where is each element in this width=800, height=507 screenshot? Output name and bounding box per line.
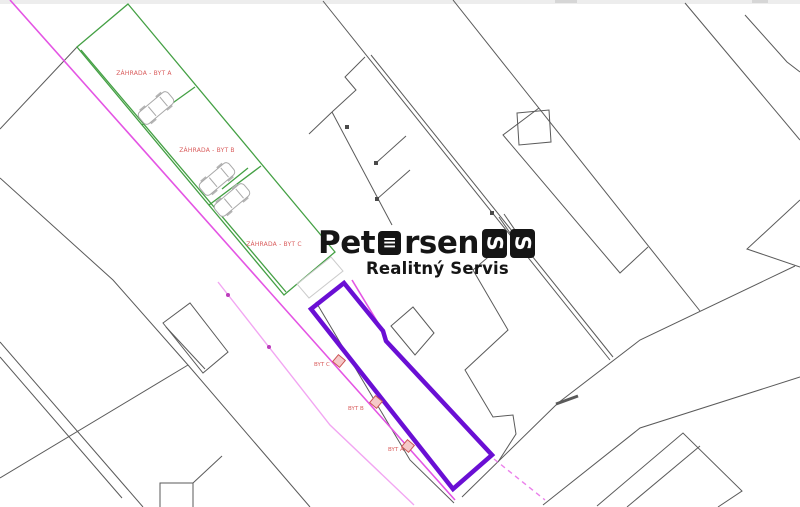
garden-label: ZÁHRADA - BYT C (229, 241, 319, 248)
building-highlight (311, 283, 492, 489)
cadastral-map: ZÁHRADA - BYT A ZÁHRADA - BYT B ZÁHRADA … (0, 0, 800, 507)
logo-e-icon: ≡ (378, 231, 401, 255)
petersen-logo: Pet ≡ rsen S S (318, 225, 535, 261)
logo-text-rsen: rsen (404, 225, 479, 261)
logo-mark-icon: S (510, 229, 535, 258)
unit-label: BYT C (314, 362, 330, 368)
logo-mark-icon: S (482, 229, 507, 258)
garden-label: ZÁHRADA - BYT A (99, 70, 189, 77)
unit-label: BYT B (348, 406, 364, 412)
logo-subtitle: Realitný Servis (366, 259, 509, 278)
logo-text-pet: Pet (318, 225, 375, 261)
unit-label: BYT A (388, 447, 404, 453)
road-lines (462, 266, 800, 507)
top-edge-strip (0, 0, 800, 4)
garden-label: ZÁHRADA - BYT B (162, 147, 252, 154)
